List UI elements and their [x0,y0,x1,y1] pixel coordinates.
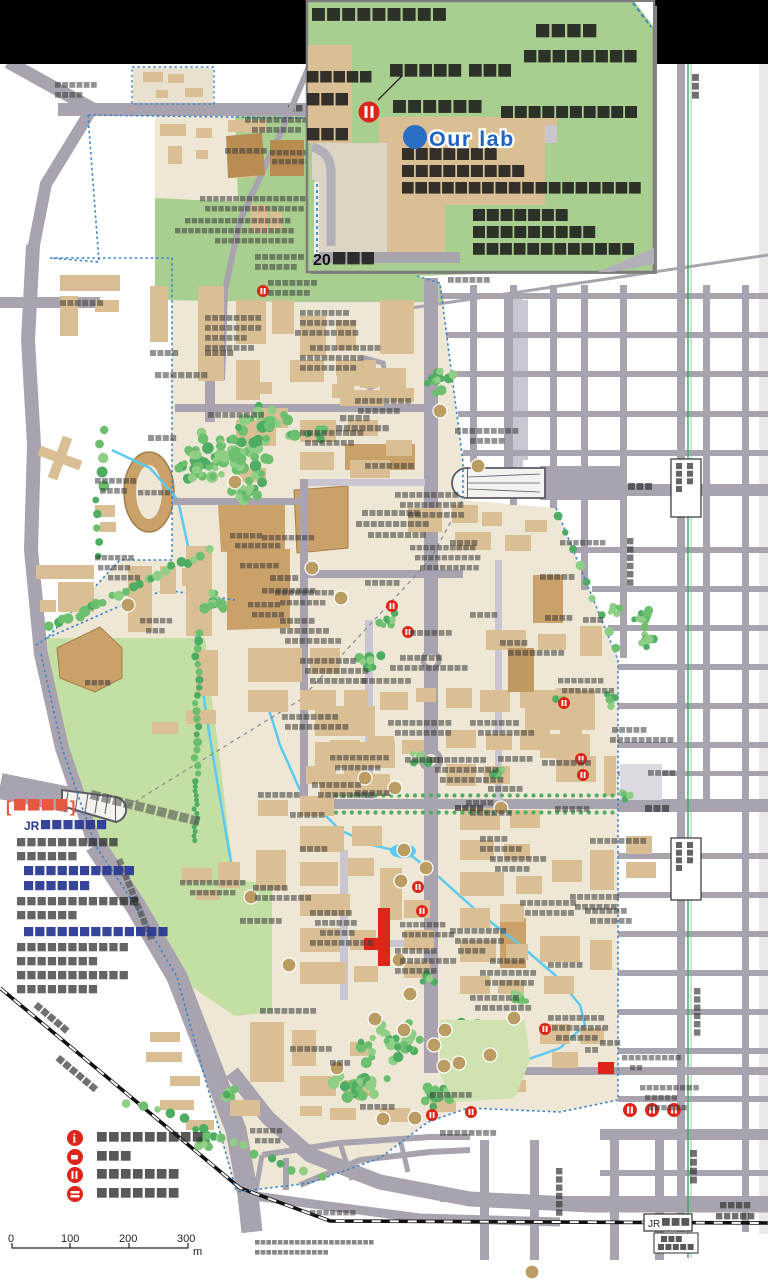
svg-text:JR: JR [648,1219,660,1230]
svg-text:Our lab: Our lab [429,127,515,151]
svg-text:300: 300 [177,1233,195,1245]
svg-text:200: 200 [119,1233,137,1245]
svg-text:20: 20 [313,252,331,269]
svg-text:m: m [193,1246,202,1258]
svg-text:0: 0 [8,1233,14,1245]
svg-text:i: i [73,1131,77,1146]
svg-text:]: ] [70,799,75,816]
svg-text:JR: JR [24,819,40,833]
svg-text:[: [ [6,799,12,816]
